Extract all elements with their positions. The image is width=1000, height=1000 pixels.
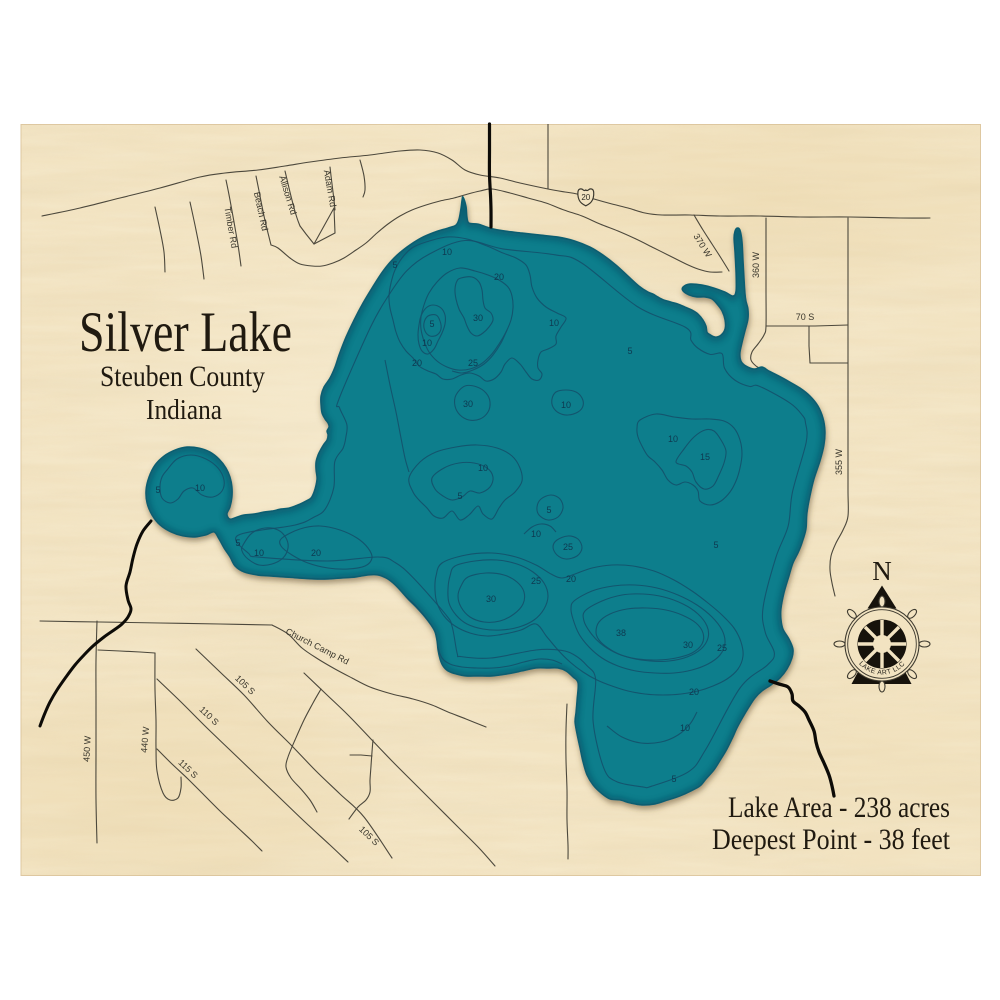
svg-text:5: 5 [713,540,718,550]
svg-text:15: 15 [700,452,710,462]
svg-text:20: 20 [494,272,504,282]
svg-text:25: 25 [468,358,478,368]
svg-text:Indiana: Indiana [146,395,223,426]
svg-text:70 S: 70 S [796,312,815,322]
svg-text:Steuben County: Steuben County [100,360,265,393]
svg-text:10: 10 [531,529,541,539]
svg-text:25: 25 [717,643,727,653]
svg-text:360 W: 360 W [751,251,761,278]
svg-text:20: 20 [311,548,321,558]
svg-text:10: 10 [680,723,690,733]
svg-text:30: 30 [683,640,693,650]
svg-text:20: 20 [689,687,699,697]
svg-text:5: 5 [392,260,397,270]
svg-text:20: 20 [566,574,576,584]
svg-text:10: 10 [549,318,559,328]
svg-text:10: 10 [442,247,452,257]
svg-text:5: 5 [627,346,632,356]
svg-text:5: 5 [155,485,160,495]
svg-text:38: 38 [616,628,626,638]
svg-text:10: 10 [561,400,571,410]
svg-text:10: 10 [422,338,432,348]
svg-text:10: 10 [254,548,264,558]
svg-text:355 W: 355 W [834,448,844,475]
svg-text:5: 5 [671,774,676,784]
svg-text:5: 5 [546,505,551,515]
svg-text:30: 30 [486,594,496,604]
svg-text:10: 10 [478,463,488,473]
svg-text:450 W: 450 W [81,735,92,762]
svg-text:20: 20 [581,193,590,202]
svg-text:25: 25 [531,576,541,586]
svg-text:Lake Area - 238 acres: Lake Area - 238 acres [728,791,950,824]
svg-text:10: 10 [668,434,678,444]
svg-text:5: 5 [429,319,434,329]
svg-text:30: 30 [473,313,483,323]
svg-text:5: 5 [235,538,240,548]
svg-text:N: N [872,556,892,586]
svg-text:30: 30 [463,399,473,409]
svg-text:20: 20 [412,358,422,368]
svg-text:10: 10 [195,483,205,493]
svg-text:5: 5 [457,491,462,501]
svg-text:Deepest Point - 38 feet: Deepest Point - 38 feet [712,823,951,856]
svg-text:25: 25 [563,542,573,552]
svg-text:Silver Lake: Silver Lake [79,301,292,364]
